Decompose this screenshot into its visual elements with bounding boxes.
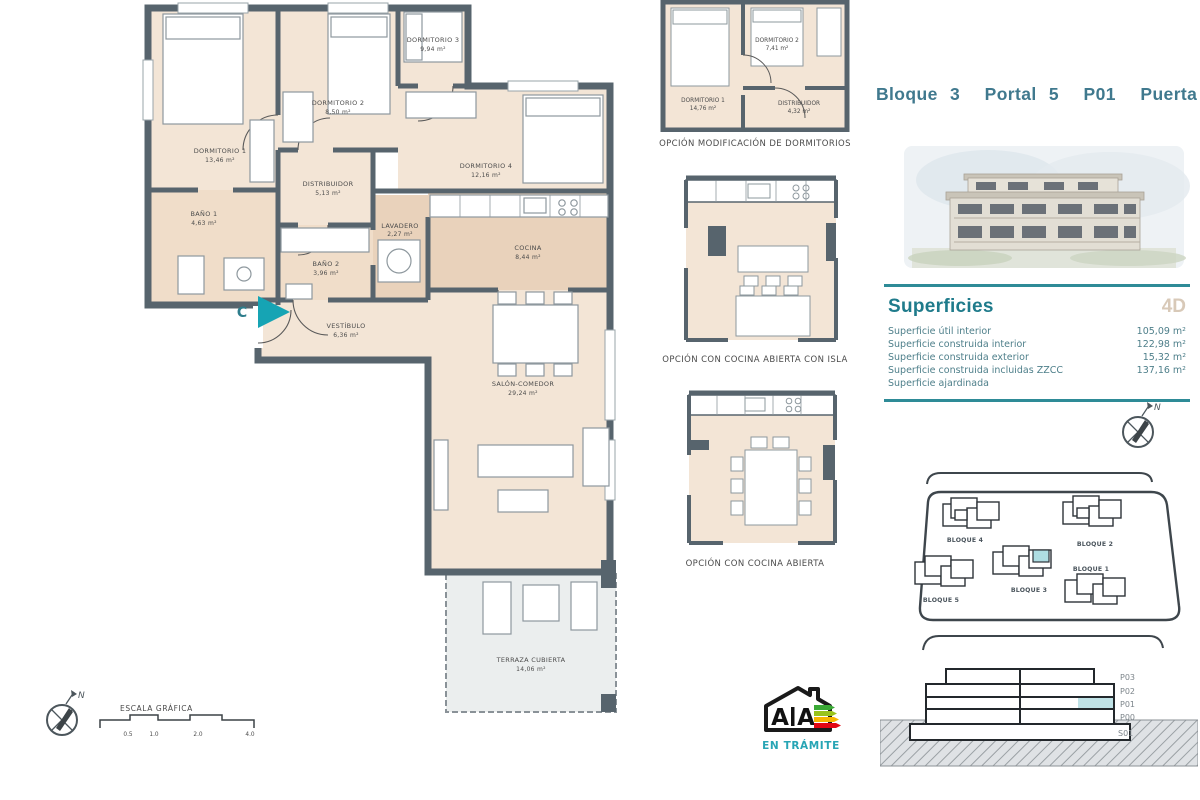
floor-label-p03: P03 <box>1120 673 1135 682</box>
svg-text:4,32 m²: 4,32 m² <box>788 108 811 115</box>
svg-text:3,96 m²: 3,96 m² <box>313 270 339 277</box>
highlighted-floor-unit <box>1078 698 1113 708</box>
svg-text:8,50 m²: 8,50 m² <box>325 109 351 116</box>
superficies-heading: Superficies <box>888 296 994 318</box>
energy-letter-a: A <box>771 705 789 731</box>
main-floor-plan: C <box>28 0 648 725</box>
svg-text:12,16 m²: 12,16 m² <box>471 172 501 179</box>
highlighted-unit <box>1033 550 1049 562</box>
plan-sheet: C <box>0 0 1200 800</box>
svg-text:6,36 m²: 6,36 m² <box>333 332 359 339</box>
svg-text:13,46 m²: 13,46 m² <box>205 157 235 164</box>
room-label-vestibulo: VESTÍBULO <box>327 321 366 330</box>
north-label: N <box>1154 403 1161 413</box>
unit-type-badge: 4D <box>1162 296 1186 318</box>
block-label-5: BLOQUE 5 <box>923 597 959 604</box>
scale-tick: 4.0 <box>245 732 255 738</box>
row-label: Superficie ajardinada <box>888 378 989 389</box>
room-label-dormitorio1: DORMITORIO 1 <box>194 147 247 155</box>
row-label: Superficie construida interior <box>888 339 1026 350</box>
option-plan-open-kitchen <box>683 385 841 550</box>
entry-label: C <box>237 305 247 321</box>
row-value: 15,32 m² <box>1143 352 1186 363</box>
block-label-1: BLOQUE 1 <box>1073 566 1109 573</box>
row-value: 137,16 m² <box>1137 365 1186 376</box>
svg-text:7,41 m²: 7,41 m² <box>766 45 789 52</box>
svg-text:4,63 m²: 4,63 m² <box>191 220 217 227</box>
site-plan: BLOQUE 4 BLOQUE 2 BLOQUE 5 BLOQUE 3 BLOQ… <box>895 468 1193 652</box>
superficies-row: Superficie construida exterior 15,32 m² <box>884 351 1190 364</box>
scale-tick: 0.5 <box>123 732 133 738</box>
option1-dormitorio2-label: DORMITORIO 2 <box>755 38 799 44</box>
row-label: Superficie útil interior <box>888 326 991 337</box>
room-label-terraza: TERRAZA CUBIERTA <box>496 656 566 664</box>
floor-label-p00: P00 <box>1120 713 1135 722</box>
option-plan-open-kitchen-island <box>678 168 846 348</box>
compass-icon: N <box>36 684 88 742</box>
option3-caption: OPCIÓN CON COCINA ABIERTA <box>645 559 865 569</box>
row-label: Superficie construida incluidas ZZCC <box>888 365 1063 376</box>
floor-label-p01: P01 <box>1120 700 1135 709</box>
block-label-3: BLOQUE 3 <box>1011 587 1047 594</box>
block-label-4: BLOQUE 4 <box>947 537 984 544</box>
option2-caption: OPCIÓN CON COCINA ABIERTA CON ISLA <box>645 355 865 365</box>
row-label: Superficie construida exterior <box>888 352 1029 363</box>
room-label-dormitorio3: DORMITORIO 3 <box>407 36 460 44</box>
superficies-row: Superficie construida incluidas ZZCC 137… <box>884 364 1190 377</box>
svg-text:9,94 m²: 9,94 m² <box>420 46 446 53</box>
room-label-bano2: BAÑO 2 <box>313 259 340 268</box>
svg-text:29,24 m²: 29,24 m² <box>508 390 538 397</box>
room-label-salon: SALÓN-COMEDOR <box>492 379 554 388</box>
option1-caption: OPCIÓN MODIFICACIÓN DE DORMITORIOS <box>645 139 865 149</box>
unit-title: Bloque 3 Portal 5 P01 Puerta C <box>876 84 1196 105</box>
elevation-diagram: P03 P02 P01 P00 S01 <box>880 652 1198 770</box>
svg-text:8,44 m²: 8,44 m² <box>515 254 541 261</box>
superficies-row: Superficie ajardinada <box>884 377 1190 390</box>
room-label-dormitorio2: DORMITORIO 2 <box>312 99 365 107</box>
building-rendering <box>898 140 1190 288</box>
svg-text:14,76 m²: 14,76 m² <box>690 105 716 112</box>
energy-status-label: EN TRÁMITE <box>746 740 856 752</box>
scale-tick: 2.0 <box>193 732 203 738</box>
room-label-bano1: BAÑO 1 <box>191 209 218 218</box>
energy-certificate-icon: A A <box>758 680 842 738</box>
superficies-rows: Superficie útil interior 105,09 m² Super… <box>884 325 1190 399</box>
svg-text:14,06 m²: 14,06 m² <box>516 666 546 673</box>
option-plan-bedrooms: DORMITORIO 1 14,76 m² DORMITORIO 2 7,41 … <box>655 0 855 132</box>
compass-icon: N <box>1112 396 1164 454</box>
option1-dormitorio1-label: DORMITORIO 1 <box>681 98 725 104</box>
svg-text:5,13 m²: 5,13 m² <box>315 190 341 197</box>
svg-text:2,27 m²: 2,27 m² <box>387 231 413 238</box>
floor-label-p02: P02 <box>1120 687 1135 696</box>
room-label-cocina: COCINA <box>514 244 541 252</box>
room-label-distribuidor: DISTRIBUIDOR <box>303 180 354 188</box>
scale-bar: 0.5 1.0 2.0 4.0 <box>98 712 260 738</box>
floor-label-s01: S01 <box>1118 729 1133 738</box>
row-value: 122,98 m² <box>1137 339 1186 350</box>
option1-distribuidor-label: DISTRIBUIDOR <box>778 101 820 107</box>
room-label-lavadero: LAVADERO <box>381 222 418 230</box>
superficies-row: Superficie construida interior 122,98 m² <box>884 338 1190 351</box>
superficies-row: Superficie útil interior 105,09 m² <box>884 325 1190 338</box>
north-label: N <box>78 691 85 701</box>
room-label-dormitorio4: DORMITORIO 4 <box>460 162 513 170</box>
scale-tick: 1.0 <box>149 732 159 738</box>
block-label-2: BLOQUE 2 <box>1077 541 1113 548</box>
row-value: 105,09 m² <box>1137 326 1186 337</box>
superficies-panel: Superficies 4D Superficie útil interior … <box>884 284 1190 402</box>
energy-letter-a: A <box>797 705 815 731</box>
